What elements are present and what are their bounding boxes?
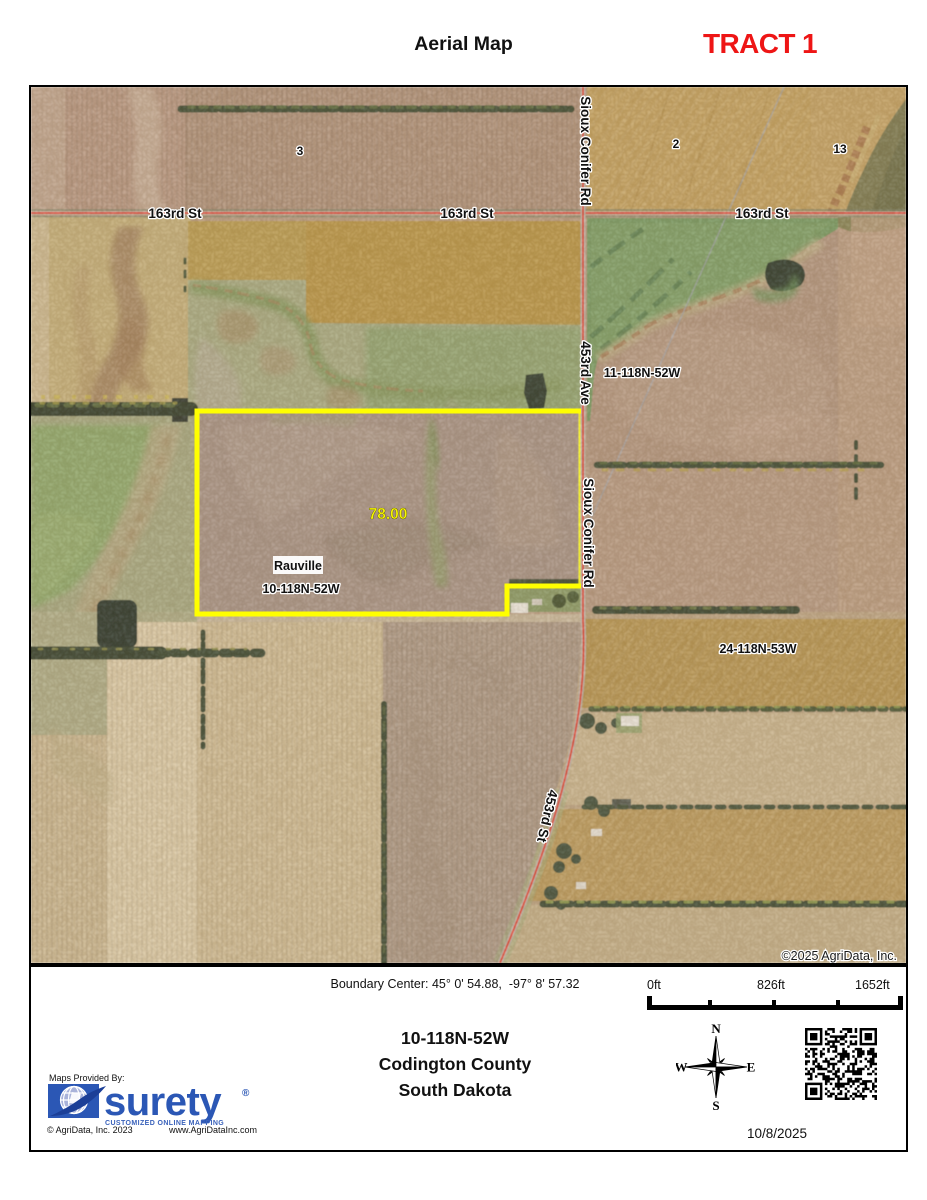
svg-text:163rd St: 163rd St (148, 206, 202, 221)
svg-text:Rauville: Rauville (274, 559, 322, 573)
svg-text:11-118N-52W: 11-118N-52W (604, 366, 681, 380)
svg-text:2: 2 (673, 137, 680, 151)
svg-text:163rd St: 163rd St (735, 206, 789, 221)
svg-text:©2025 AgriData, Inc.: ©2025 AgriData, Inc. (781, 949, 897, 963)
svg-text:10-118N-52W: 10-118N-52W (262, 582, 339, 596)
svg-text:Sioux Conifer Rd: Sioux Conifer Rd (578, 96, 593, 206)
svg-text:453rd Ave: 453rd Ave (578, 341, 593, 405)
svg-text:Sioux Conifer Rd: Sioux Conifer Rd (581, 478, 596, 588)
svg-text:3: 3 (297, 144, 304, 158)
svg-text:E: E (747, 1060, 756, 1075)
svg-text:®: ® (242, 1088, 250, 1099)
svg-text:78.00: 78.00 (369, 506, 408, 523)
svg-text:13: 13 (833, 142, 847, 156)
svg-text:N: N (711, 1022, 721, 1036)
svg-text:163rd St: 163rd St (440, 206, 494, 221)
svg-text:S: S (712, 1098, 719, 1112)
svg-text:surety: surety (104, 1083, 222, 1124)
svg-text:W: W (676, 1060, 688, 1075)
svg-text:24-118N-53W: 24-118N-53W (719, 642, 796, 656)
